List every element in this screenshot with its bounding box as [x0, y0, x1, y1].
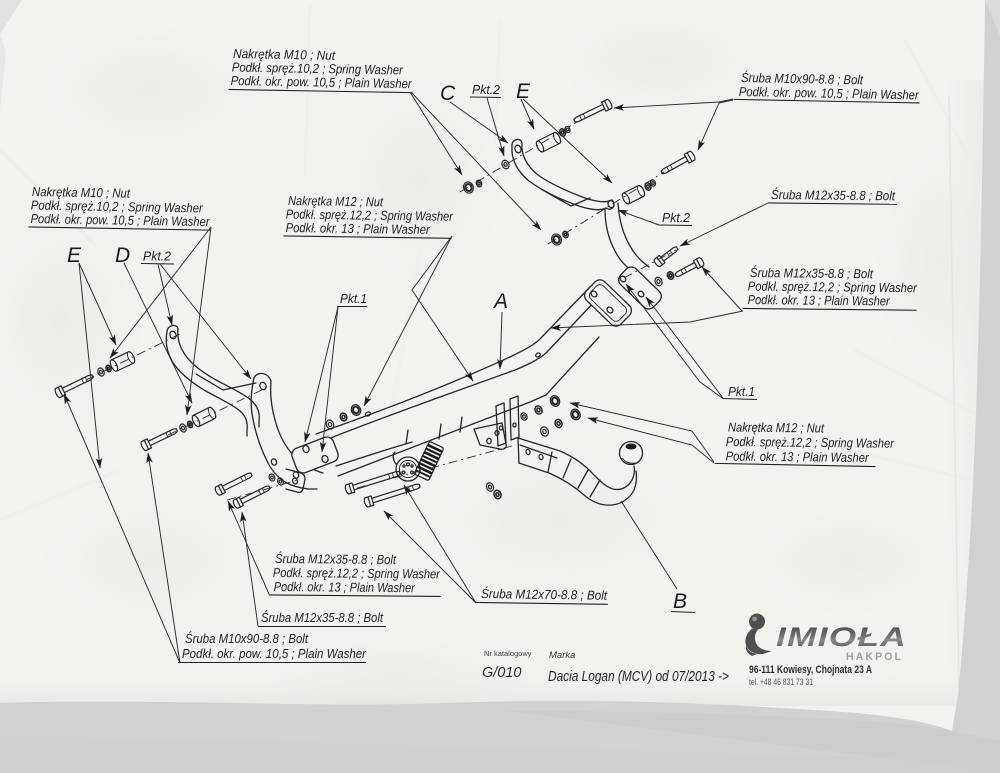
svg-text:Podkł. okr. 13 ; Plain Washer: Podkł. okr. 13 ; Plain Washer [726, 448, 870, 465]
svg-text:Śruba M12x70-8.8 ; Bolt: Śruba M12x70-8.8 ; Bolt [481, 586, 608, 603]
svg-text:Pkt.2: Pkt.2 [143, 249, 172, 264]
svg-text:Pkt.1: Pkt.1 [728, 384, 755, 399]
svg-text:Podkł. okr. 13 ; Plain Washer: Podkł. okr. 13 ; Plain Washer [274, 579, 416, 595]
svg-text:Śruba M12x35-8.8 ; Bolt: Śruba M12x35-8.8 ; Bolt [261, 610, 384, 625]
svg-text:Śruba M10x90-8.8 ; Bolt: Śruba M10x90-8.8 ; Bolt [185, 631, 309, 646]
svg-text:D: D [115, 244, 130, 267]
svg-text:A: A [492, 290, 508, 313]
svg-text:Podkł. okr. 13 ; Plain Washer: Podkł. okr. 13 ; Plain Washer [748, 292, 891, 308]
svg-text:E: E [516, 80, 531, 103]
svg-text:Dacia Logan (MCV) od 07/2013: Dacia Logan (MCV) od 07/2013 -> [548, 669, 729, 685]
svg-text:G/010: G/010 [482, 665, 522, 681]
svg-text:Nr katalogowy: Nr katalogowy [484, 649, 532, 658]
svg-text:HAKPOL: HAKPOL [846, 651, 903, 663]
svg-text:Pkt.1: Pkt.1 [340, 291, 367, 306]
svg-text:IMIOŁA: IMIOŁA [776, 622, 907, 652]
svg-text:C: C [440, 82, 456, 105]
svg-text:96-111 Kowiesy, Chojnata 23 A: 96-111 Kowiesy, Chojnata 23 A [749, 664, 872, 676]
svg-text:Podkł. okr. pow. 10,5 ; Plain: Podkł. okr. pow. 10,5 ; Plain Washer [30, 211, 210, 229]
svg-text:Śruba M12x35-8.8 ; Bolt: Śruba M12x35-8.8 ; Bolt [771, 187, 896, 203]
svg-text:Podkł. okr. pow. 10,5 ; Plain: Podkł. okr. pow. 10,5 ; Plain Washer [231, 73, 413, 91]
svg-text:Pkt.2: Pkt.2 [472, 82, 501, 97]
svg-text:E: E [67, 244, 82, 267]
svg-text:Pkt.2: Pkt.2 [662, 210, 691, 225]
svg-text:B: B [673, 590, 687, 613]
svg-text:Podkł. okr. pow. 10,5 ; Plain: Podkł. okr. pow. 10,5 ; Plain Washer [182, 646, 367, 661]
svg-text:Marka: Marka [549, 650, 575, 661]
svg-text:Podkł. okr. 13 ; Plain Washer: Podkł. okr. 13 ; Plain Washer [286, 220, 431, 237]
svg-text:tel. +48 46 831 73 31: tel. +48 46 831 73 31 [749, 677, 813, 688]
svg-text:Nakrętka M12 ; Nut: Nakrętka M12 ; Nut [728, 420, 825, 436]
